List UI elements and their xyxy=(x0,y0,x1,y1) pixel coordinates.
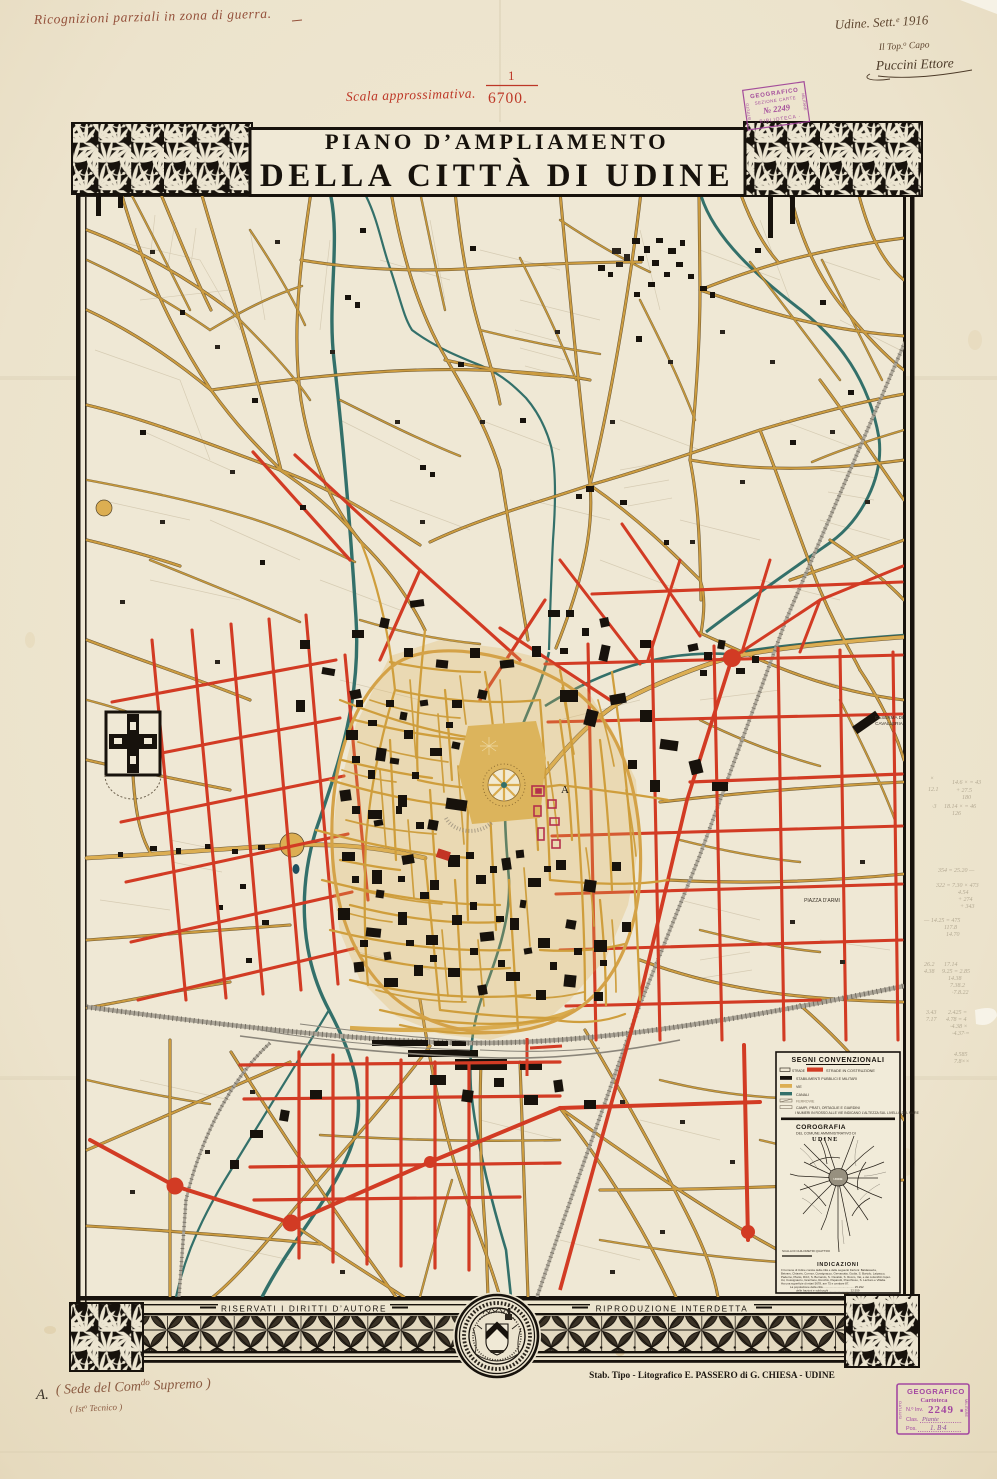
svg-text:14.6 × = 43: 14.6 × = 43 xyxy=(952,779,981,786)
svg-text:14.38: 14.38 xyxy=(948,975,962,982)
svg-text:I NUMERI IN ROSSO ALLE VIE IND: I NUMERI IN ROSSO ALLE VIE INDICANO L’AL… xyxy=(795,1111,920,1115)
svg-text:7.8××: 7.8×× xyxy=(954,1059,970,1065)
svg-text:CASERMA DI: CASERMA DI xyxy=(875,715,903,720)
svg-text:RIPRODUZIONE INTERDETTA: RIPRODUZIONE INTERDETTA xyxy=(596,1305,749,1314)
svg-text:+ 343: + 343 xyxy=(960,903,975,910)
svg-text:Puccini Ettore: Puccini Ettore xyxy=(875,55,954,73)
svg-text:Pos.: Pos. xyxy=(906,1426,917,1432)
svg-text:2249: 2249 xyxy=(928,1404,954,1416)
svg-text:delle frazioni e sobborghi ...: delle frazioni e sobborghi .............… xyxy=(796,1288,860,1292)
svg-text:4.78 = 4: 4.78 = 4 xyxy=(946,1016,967,1023)
svg-text:ISTITUTO: ISTITUTO xyxy=(898,1401,903,1419)
svg-text:CAMPI, PRATI, ORTAGLIE E GIARD: CAMPI, PRATI, ORTAGLIE E GIARDINI xyxy=(796,1106,860,1110)
svg-text:126: 126 xyxy=(952,811,961,817)
svg-text:2.425 =: 2.425 = xyxy=(948,1009,967,1016)
svg-text:·7.8.22: ·7.8.22 xyxy=(952,990,969,996)
svg-text:7.38.2: 7.38.2 xyxy=(950,983,965,989)
svg-text:A: A xyxy=(561,784,569,796)
svg-text:— 14.25 = 475: — 14.25 = 475 xyxy=(923,917,960,924)
svg-text:354 = 25.20 —: 354 = 25.20 — xyxy=(937,867,975,874)
svg-text:4.54: 4.54 xyxy=(958,889,969,896)
svg-text:COROGRAFIA: COROGRAFIA xyxy=(796,1124,846,1131)
svg-text:1: 1 xyxy=(508,68,515,83)
svg-text:·3: ·3 xyxy=(932,804,937,810)
svg-text:SCALA DI CHILOMETRI QUATTRO: SCALA DI CHILOMETRI QUATTRO xyxy=(782,1249,831,1253)
svg-text:PIANO D’AMPLIAMENTO: PIANO D’AMPLIAMENTO xyxy=(325,129,669,154)
svg-text:UDINE: UDINE xyxy=(833,1177,842,1181)
svg-text:SEGNI CONVENZIONALI: SEGNI CONVENZIONALI xyxy=(791,1057,884,1064)
svg-text:PIAZZA D’ARMI: PIAZZA D’ARMI xyxy=(804,898,840,904)
svg-text:A.: A. xyxy=(35,1387,49,1403)
svg-text:×: × xyxy=(930,776,934,782)
svg-text:Stab. Tipo - Litografico E. PA: Stab. Tipo - Litografico E. PASSERO di G… xyxy=(589,1371,835,1381)
svg-text:18.14 × = 46: 18.14 × = 46 xyxy=(944,803,976,810)
svg-text:CAVALLERIA: CAVALLERIA xyxy=(875,721,904,726)
svg-text:DEL COMUNE AMMINISTRATIVO DI: DEL COMUNE AMMINISTRATIVO DI xyxy=(796,1132,856,1136)
svg-text:Cartoteca: Cartoteca xyxy=(921,1397,949,1404)
svg-text:RISERVATI I DIRITTI D’AUTORE: RISERVATI I DIRITTI D’AUTORE xyxy=(221,1305,387,1314)
svg-text:Clas.: Clas. xyxy=(906,1417,918,1423)
svg-text:7.17: 7.17 xyxy=(926,1017,938,1023)
svg-text:MILITARE: MILITARE xyxy=(964,1399,969,1417)
svg-text:FERROVIE: FERROVIE xyxy=(796,1099,815,1103)
svg-text:·4.38 ×: ·4.38 × xyxy=(950,1023,968,1030)
svg-text:17.14: 17.14 xyxy=(944,961,958,968)
svg-text:STABILIMENTI PUBBLICI E MILITA: STABILIMENTI PUBBLICI E MILITARI xyxy=(796,1077,857,1081)
svg-text:■: ■ xyxy=(960,1408,963,1414)
svg-text:1. B·4: 1. B·4 xyxy=(930,1424,947,1432)
svg-text:STRADE: STRADE xyxy=(792,1069,805,1073)
svg-text:4.585: 4.585 xyxy=(954,1051,968,1058)
svg-text:9.25 = 2.85: 9.25 = 2.85 xyxy=(942,969,970,975)
svg-text:CANALI: CANALI xyxy=(796,1093,809,1097)
svg-text:STRADE IN COSTRUZIONE: STRADE IN COSTRUZIONE xyxy=(826,1069,875,1073)
svg-text:322 = 7.30 × 473: 322 = 7.30 × 473 xyxy=(935,882,979,889)
svg-text:VIE: VIE xyxy=(796,1085,802,1089)
svg-text:4.38: 4.38 xyxy=(924,968,935,975)
svg-text:180: 180 xyxy=(962,795,971,801)
svg-text:·4.37·=: ·4.37·= xyxy=(952,1030,970,1037)
svg-text:12.1: 12.1 xyxy=(928,787,939,793)
svg-text:26.2: 26.2 xyxy=(924,962,935,968)
svg-text:+ 27.5: + 27.5 xyxy=(956,788,972,794)
svg-text:DELLA CITTÀ DI UDINE: DELLA CITTÀ DI UDINE xyxy=(260,157,734,194)
svg-text:N.º Inv.: N.º Inv. xyxy=(906,1407,923,1413)
svg-text:6700.: 6700. xyxy=(488,90,528,107)
svg-text:+ 274: + 274 xyxy=(958,896,973,903)
svg-text:3.43: 3.43 xyxy=(925,1009,937,1016)
svg-text:117.8: 117.8 xyxy=(944,925,957,931)
svg-text:Piante: Piante xyxy=(921,1416,939,1423)
svg-text:GEOGRAFICO: GEOGRAFICO xyxy=(907,1387,965,1396)
svg-text:14.70: 14.70 xyxy=(946,931,960,938)
